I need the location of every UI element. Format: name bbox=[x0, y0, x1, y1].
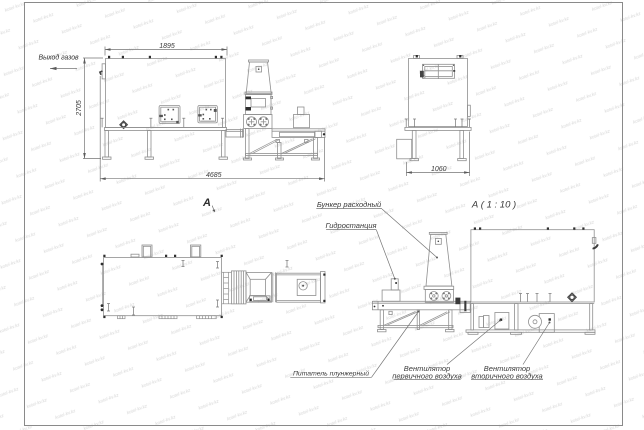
svg-text:Бункер расходный: Бункер расходный bbox=[317, 200, 382, 209]
svg-text:Гидростанция: Гидростанция bbox=[325, 221, 376, 230]
svg-text:2705: 2705 bbox=[76, 100, 83, 117]
svg-text:А: А bbox=[202, 197, 211, 209]
svg-text:первичного воздуха: первичного воздуха bbox=[392, 371, 462, 380]
svg-text:1060: 1060 bbox=[431, 166, 447, 173]
svg-text:А ( 1 : 10 ): А ( 1 : 10 ) bbox=[471, 200, 516, 211]
svg-text:1895: 1895 bbox=[159, 43, 175, 50]
svg-text:Выход газов: Выход газов bbox=[39, 54, 80, 62]
svg-text:Питатель плунжерный: Питатель плунжерный bbox=[293, 369, 369, 377]
svg-text:4685: 4685 bbox=[206, 172, 222, 179]
svg-text:вторичного воздуха: вторичного воздуха bbox=[471, 371, 542, 380]
